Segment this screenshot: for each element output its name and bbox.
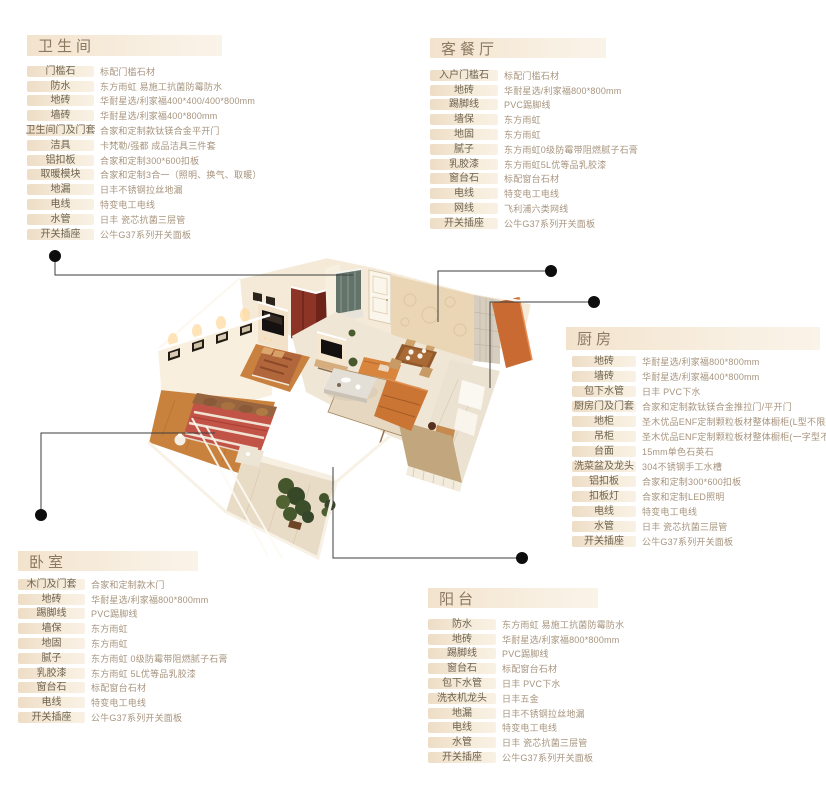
spec-row: 铝扣板合家和定制300*600扣板 [27,153,262,168]
spec-row: 防水东方雨虹 易施工抗菌防霉防水 [27,79,262,94]
spec-row: 踢脚线PVC踢脚线 [18,607,228,622]
spec-value: 华耐星选/利家福400*400/400*800mm [100,94,255,107]
spec-row: 开关插座公牛G37系列开关面板 [428,750,624,765]
spec-row: 窗台石标配窗台石材 [430,172,638,187]
spec-label: 开关插座 [430,218,498,229]
spec-label: 地固 [18,638,85,649]
spec-label: 地漏 [428,708,496,719]
spec-row: 扣板灯合家和定制LED照明 [566,489,826,504]
spec-row: 包下水管日丰 PVC下水 [428,676,624,691]
panel-bathroom: 卫生间 门槛石标配门槛石材防水东方雨虹 易施工抗菌防霉防水地砖华耐星选/利家福4… [27,35,262,242]
spec-row: 铝扣板合家和定制300*600扣板 [566,474,826,489]
spec-value: 东方雨虹0级防霉带阻燃腻子石膏 [504,143,638,156]
spec-value: 合家和定制款钛镁合金推拉门/平开门 [642,400,792,413]
spec-label: 腻子 [430,144,498,155]
spec-row: 地固东方雨虹 [430,127,638,142]
spec-label: 地柜 [572,416,636,427]
spec-label: 吊柜 [572,431,636,442]
spec-value: 公牛G37系列开关面板 [100,228,191,241]
spec-value: 标配窗台石材 [91,681,146,694]
spec-row: 木门及门套合家和定制款木门 [18,577,228,592]
panel-balcony-title: 阳台 [428,588,598,608]
spec-value: 华耐星选/利家福400*800mm [642,370,759,383]
spec-value: 东方雨虹 [91,622,128,635]
spec-label: 包下水管 [572,386,636,397]
spec-label: 腻子 [18,653,85,664]
spec-row: 电线特变电工电线 [27,197,262,212]
spec-value: 卡梵勒/强都 成品洁具三件套 [100,139,216,152]
spec-label: 墙保 [430,114,498,125]
spec-value: PVC踢脚线 [504,98,551,111]
panel-living-dining-title: 客餐厅 [430,38,606,58]
spec-row: 电线特变电工电线 [430,186,638,201]
spec-value: 东方雨虹 [504,113,541,126]
spec-label: 踢脚线 [18,608,85,619]
spec-value: 合家和定制3合一（照明、换气、取暖） [100,168,262,181]
spec-value: 日丰不锈钢拉丝地漏 [502,707,585,720]
spec-row: 开关插座公牛G37系列开关面板 [566,534,826,549]
spec-value: 华耐星选/利家福800*800mm [642,355,759,368]
spec-label: 电线 [27,199,94,210]
spec-value: 日丰 瓷芯抗菌三层管 [502,736,588,749]
spec-row: 地柜圣木优品ENF定制颗粒板材整体橱柜(L型不限延米) [566,414,826,429]
spec-label: 地砖 [428,634,496,645]
spec-label: 地砖 [18,594,85,605]
spec-label: 电线 [430,188,498,199]
panel-bedroom-rows: 木门及门套合家和定制款木门地砖华耐星选/利家福800*800mm踢脚线PVC踢脚… [18,577,228,725]
panel-balcony-rows: 防水东方雨虹 易施工抗菌防霉防水地砖华耐星选/利家福800*800mm踢脚线PV… [428,617,624,765]
spec-label: 铝扣板 [27,155,94,166]
spec-row: 防水东方雨虹 易施工抗菌防霉防水 [428,617,624,632]
panel-kitchen-rows: 地砖华耐星选/利家福800*800mm墙砖华耐星选/利家福400*800mm包下… [566,354,826,549]
panel-kitchen: 厨房 地砖华耐星选/利家福800*800mm墙砖华耐星选/利家福400*800m… [566,327,826,549]
spec-row: 取暖模块合家和定制3合一（照明、换气、取暖） [27,168,262,183]
spec-row: 入户门槛石标配门槛石材 [430,68,638,83]
spec-row: 电线特变电工电线 [566,504,826,519]
spec-value: 合家和定制款钛镁合金平开门 [100,124,220,137]
spec-row: 地砖华耐星选/利家福800*800mm [566,354,826,369]
spec-value: 东方雨虹 0级防霉带阻燃腻子石膏 [91,652,228,665]
spec-label: 包下水管 [428,678,496,689]
spec-label: 开关插座 [27,229,94,240]
spec-label: 乳胶漆 [18,668,85,679]
spec-value: 公牛G37系列开关面板 [642,535,733,548]
spec-row: 墙砖华耐星选/利家福400*800mm [27,108,262,123]
spec-label: 开关插座 [572,536,636,547]
spec-value: 特变电工电线 [504,187,559,200]
spec-value: 华耐星选/利家福800*800mm [91,593,208,606]
spec-value: 特变电工电线 [642,505,697,518]
spec-row: 地砖华耐星选/利家福800*800mm [18,592,228,607]
spec-value: PVC踢脚线 [91,607,138,620]
spec-row: 台面15mm单色石英石 [566,444,826,459]
spec-row: 开关插座公牛G37系列开关面板 [18,710,228,725]
spec-label: 地砖 [430,85,498,96]
spec-row: 包下水管日丰 PVC下水 [566,384,826,399]
spec-value: 日丰 PVC下水 [502,677,561,690]
spec-label: 墙砖 [572,371,636,382]
spec-label: 地砖 [27,95,94,106]
spec-value: 华耐星选/利家福800*800mm [504,84,621,97]
spec-label: 网线 [430,203,498,214]
panel-balcony: 阳台 防水东方雨虹 易施工抗菌防霉防水地砖华耐星选/利家福800*800mm踢脚… [428,588,624,765]
callout-dot-bathroom [49,250,61,262]
spec-label: 水管 [27,214,94,225]
spec-row: 墙砖华耐星选/利家福400*800mm [566,369,826,384]
spec-value: PVC踢脚线 [502,647,549,660]
spec-value: 日丰不锈钢拉丝地漏 [100,183,183,196]
spec-label: 洗衣机龙头 [428,693,496,704]
spec-label: 卫生间门及门套 [27,125,94,136]
spec-label: 地砖 [572,356,636,367]
spec-value: 日丰五金 [502,692,539,705]
spec-row: 墙保东方雨虹 [430,112,638,127]
spec-value: 圣木优品ENF定制颗粒板材整体橱柜(L型不限延米) [642,415,826,428]
spec-label: 台面 [572,446,636,457]
spec-row: 洁具卡梵勒/强都 成品洁具三件套 [27,138,262,153]
spec-row: 地漏日丰不锈钢拉丝地漏 [428,706,624,721]
spec-label: 厨房门及门套 [572,401,636,412]
spec-value: 东方雨虹 [504,128,541,141]
spec-label: 开关插座 [18,712,85,723]
spec-label: 取暖模块 [27,169,94,180]
spec-row: 水管日丰 瓷芯抗菌三层管 [428,735,624,750]
spec-label: 洁具 [27,140,94,151]
spec-label: 墙砖 [27,110,94,121]
spec-row: 厨房门及门套合家和定制款钛镁合金推拉门/平开门 [566,399,826,414]
spec-value: 东方雨虹 [91,637,128,650]
spec-value: 304不锈钢手工水槽 [642,460,722,473]
spec-value: 东方雨虹 5L优等品乳胶漆 [91,667,196,680]
spec-label: 水管 [428,737,496,748]
spec-label: 洗菜盆及龙头 [572,461,636,472]
spec-label: 电线 [572,506,636,517]
spec-row: 开关插座公牛G37系列开关面板 [27,227,262,242]
spec-label: 地固 [430,129,498,140]
spec-row: 地漏日丰不锈钢拉丝地漏 [27,182,262,197]
spec-label: 窗台石 [428,663,496,674]
spec-row: 门槛石标配门槛石材 [27,64,262,79]
panel-bedroom: 卧室 木门及门套合家和定制款木门地砖华耐星选/利家福800*800mm踢脚线PV… [18,551,228,725]
spec-row: 水管日丰 瓷芯抗菌三层管 [566,519,826,534]
spec-label: 踢脚线 [430,99,498,110]
spec-value: 公牛G37系列开关面板 [91,711,182,724]
spec-value: 标配门槛石材 [504,69,559,82]
spec-value: 公牛G37系列开关面板 [502,751,593,764]
spec-label: 踢脚线 [428,648,496,659]
spec-value: 合家和定制300*600扣板 [642,475,741,488]
spec-row: 地砖华耐星选/利家福800*800mm [428,632,624,647]
spec-value: 标配门槛石材 [100,65,155,78]
spec-label: 木门及门套 [18,579,85,590]
spec-value: 日丰 PVC下水 [642,385,701,398]
spec-label: 入户门槛石 [430,70,498,81]
spec-row: 吊柜圣木优品ENF定制颗粒板材整体橱柜(一字型不限延米) [566,429,826,444]
spec-row: 腻子东方雨虹0级防霉带阻燃腻子石膏 [430,142,638,157]
spec-row: 乳胶漆东方雨虹5L优等品乳胶漆 [430,157,638,172]
spec-label: 窗台石 [18,682,85,693]
spec-value: 东方雨虹 易施工抗菌防霉防水 [502,618,624,631]
spec-row: 水管日丰 瓷芯抗菌三层管 [27,212,262,227]
spec-value: 华耐星选/利家福800*800mm [502,633,619,646]
spec-value: 飞利浦六类网线 [504,202,568,215]
spec-row: 墙保东方雨虹 [18,621,228,636]
spec-value: 标配窗台石材 [502,662,557,675]
spec-row: 踢脚线PVC踢脚线 [428,647,624,662]
panel-kitchen-title: 厨房 [566,327,820,350]
spec-label: 防水 [27,81,94,92]
spec-value: 东方雨虹 易施工抗菌防霉防水 [100,80,222,93]
spec-row: 卫生间门及门套合家和定制款钛镁合金平开门 [27,123,262,138]
spec-label: 墙保 [18,623,85,634]
spec-row: 窗台石标配窗台石材 [18,681,228,696]
spec-value: 特变电工电线 [100,198,155,211]
spec-value: 合家和定制300*600扣板 [100,154,199,167]
panel-living-dining: 客餐厅 入户门槛石标配门槛石材地砖华耐星选/利家福800*800mm踢脚线PVC… [430,38,638,231]
spec-label: 电线 [18,697,85,708]
spec-row: 地固东方雨虹 [18,636,228,651]
spec-row: 洗衣机龙头日丰五金 [428,691,624,706]
spec-row: 电线特变电工电线 [428,721,624,736]
spec-value: 15mm单色石英石 [642,445,714,458]
spec-row: 踢脚线PVC踢脚线 [430,98,638,113]
spec-row: 网线飞利浦六类网线 [430,201,638,216]
spec-row: 腻子东方雨虹 0级防霉带阻燃腻子石膏 [18,651,228,666]
spec-row: 地砖华耐星选/利家福800*800mm [430,83,638,98]
spec-label: 防水 [428,619,496,630]
spec-label: 开关插座 [428,752,496,763]
spec-row: 电线特变电工电线 [18,695,228,710]
spec-label: 铝扣板 [572,476,636,487]
spec-value: 公牛G37系列开关面板 [504,217,595,230]
spec-label: 门槛石 [27,66,94,77]
spec-row: 地砖华耐星选/利家福400*400/400*800mm [27,94,262,109]
callout-dot-bedroom [35,509,47,521]
spec-row: 洗菜盆及龙头304不锈钢手工水槽 [566,459,826,474]
spec-label: 乳胶漆 [430,159,498,170]
spec-value: 标配窗台石材 [504,172,559,185]
spec-value: 华耐星选/利家福400*800mm [100,109,217,122]
spec-value: 东方雨虹5L优等品乳胶漆 [504,158,606,171]
spec-value: 合家和定制LED照明 [642,490,725,503]
spec-label: 扣板灯 [572,491,636,502]
panel-bathroom-rows: 门槛石标配门槛石材防水东方雨虹 易施工抗菌防霉防水地砖华耐星选/利家福400*4… [27,64,262,242]
panel-bathroom-title: 卫生间 [27,35,222,56]
spec-value: 特变电工电线 [502,721,557,734]
panel-living-dining-rows: 入户门槛石标配门槛石材地砖华耐星选/利家福800*800mm踢脚线PVC踢脚线墙… [430,68,638,231]
spec-row: 开关插座公牛G37系列开关面板 [430,216,638,231]
spec-value: 合家和定制款木门 [91,578,165,591]
spec-label: 水管 [572,521,636,532]
spec-row: 窗台石标配窗台石材 [428,661,624,676]
spec-value: 日丰 瓷芯抗菌三层管 [100,213,186,226]
spec-label: 电线 [428,722,496,733]
panel-bedroom-title: 卧室 [18,551,198,571]
spec-label: 窗台石 [430,173,498,184]
spec-value: 日丰 瓷芯抗菌三层管 [642,520,728,533]
spec-label: 地漏 [27,184,94,195]
page-canvas: 卫生间 门槛石标配门槛石材防水东方雨虹 易施工抗菌防霉防水地砖华耐星选/利家福4… [0,0,826,785]
spec-row: 乳胶漆东方雨虹 5L优等品乳胶漆 [18,666,228,681]
spec-value: 特变电工电线 [91,696,146,709]
spec-value: 圣木优品ENF定制颗粒板材整体橱柜(一字型不限延米) [642,430,826,443]
